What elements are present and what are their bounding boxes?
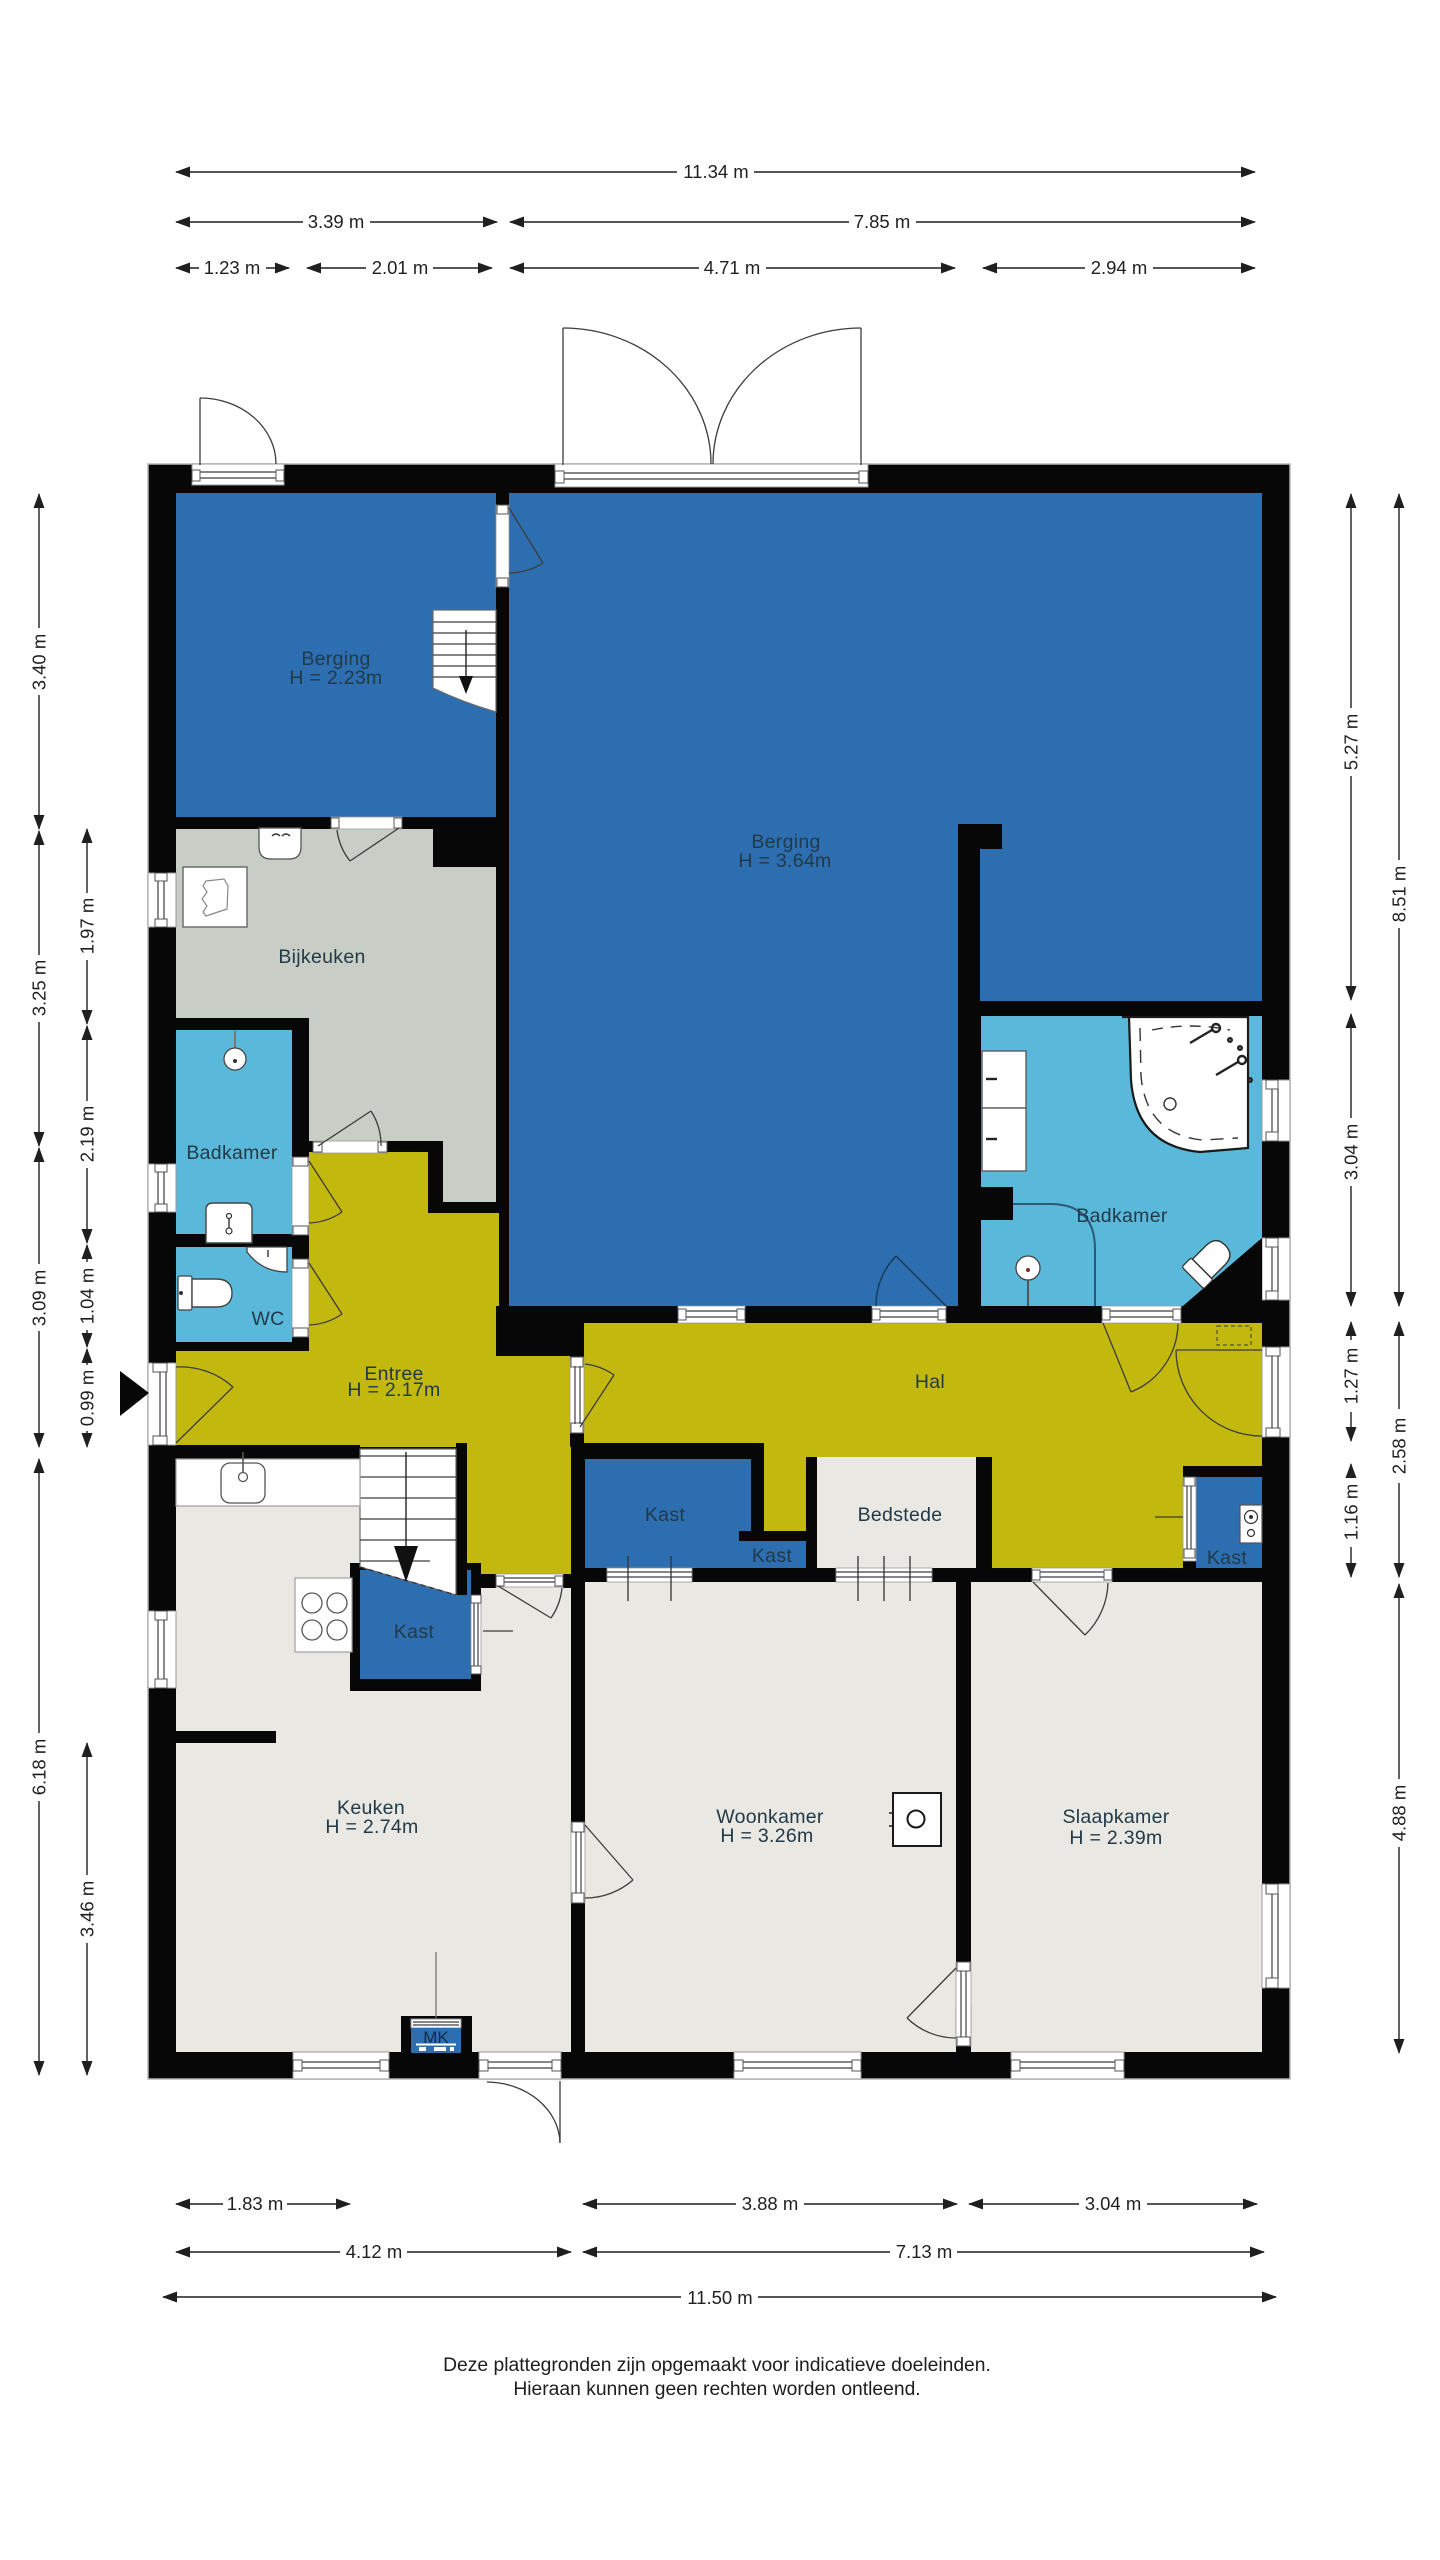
svg-text:0.99 m: 0.99 m: [77, 1370, 98, 1427]
svg-text:11.34 m: 11.34 m: [683, 161, 748, 182]
svg-text:3.04 m: 3.04 m: [1085, 2193, 1142, 2214]
svg-text:7.13 m: 7.13 m: [896, 2241, 953, 2262]
svg-text:8.51 m: 8.51 m: [1389, 866, 1410, 923]
svg-text:1.27 m: 1.27 m: [1341, 1348, 1362, 1405]
svg-text:H = 3.64m: H = 3.64m: [738, 850, 831, 872]
svg-text:H = 2.74m: H = 2.74m: [325, 1816, 418, 1838]
svg-text:Kast: Kast: [752, 1545, 793, 1567]
svg-text:H = 2.17m: H = 2.17m: [347, 1379, 440, 1401]
svg-text:6.18 m: 6.18 m: [29, 1739, 50, 1796]
svg-text:3.88 m: 3.88 m: [742, 2193, 799, 2214]
svg-text:2.19 m: 2.19 m: [77, 1106, 98, 1163]
svg-text:Badkamer: Badkamer: [186, 1142, 277, 1164]
svg-text:1.83 m: 1.83 m: [227, 2193, 284, 2214]
svg-text:WC: WC: [251, 1308, 284, 1330]
svg-text:4.71 m: 4.71 m: [704, 257, 761, 278]
svg-text:4.12 m: 4.12 m: [346, 2241, 403, 2262]
svg-text:2.94 m: 2.94 m: [1091, 257, 1148, 278]
svg-text:3.04 m: 3.04 m: [1341, 1124, 1362, 1181]
svg-text:Deze plattegronden zijn opgema: Deze plattegronden zijn opgemaakt voor i…: [443, 2355, 991, 2376]
svg-text:7.85 m: 7.85 m: [854, 211, 911, 232]
svg-text:1.97 m: 1.97 m: [77, 898, 98, 955]
svg-text:1.23 m: 1.23 m: [204, 257, 261, 278]
svg-text:3.25 m: 3.25 m: [29, 960, 50, 1017]
svg-text:Kast: Kast: [1207, 1547, 1248, 1569]
svg-text:H = 2.39m: H = 2.39m: [1069, 1827, 1162, 1849]
svg-text:1.04 m: 1.04 m: [77, 1268, 98, 1325]
svg-text:H = 2.23m: H = 2.23m: [289, 667, 382, 689]
svg-text:Kast: Kast: [645, 1504, 686, 1526]
svg-text:Hieraan kunnen geen rechten wo: Hieraan kunnen geen rechten worden ontle…: [513, 2379, 920, 2400]
svg-text:Slaapkamer: Slaapkamer: [1062, 1806, 1169, 1828]
svg-text:4.88 m: 4.88 m: [1389, 1785, 1410, 1842]
svg-text:3.40 m: 3.40 m: [29, 634, 50, 691]
svg-text:2.58 m: 2.58 m: [1389, 1418, 1410, 1475]
svg-text:Badkamer: Badkamer: [1076, 1205, 1167, 1227]
svg-text:Bedstede: Bedstede: [858, 1504, 943, 1526]
svg-text:H = 3.26m: H = 3.26m: [720, 1825, 813, 1847]
svg-text:Hal: Hal: [915, 1371, 945, 1393]
svg-text:3.46 m: 3.46 m: [77, 1881, 98, 1938]
svg-text:5.27 m: 5.27 m: [1341, 714, 1362, 771]
svg-text:11.50 m: 11.50 m: [687, 2287, 752, 2308]
svg-text:Bijkeuken: Bijkeuken: [278, 946, 365, 968]
svg-text:2.01 m: 2.01 m: [372, 257, 429, 278]
svg-text:1.16 m: 1.16 m: [1341, 1484, 1362, 1541]
svg-text:3.39 m: 3.39 m: [308, 211, 365, 232]
svg-text:3.09 m: 3.09 m: [29, 1270, 50, 1327]
svg-text:Kast: Kast: [394, 1621, 435, 1643]
